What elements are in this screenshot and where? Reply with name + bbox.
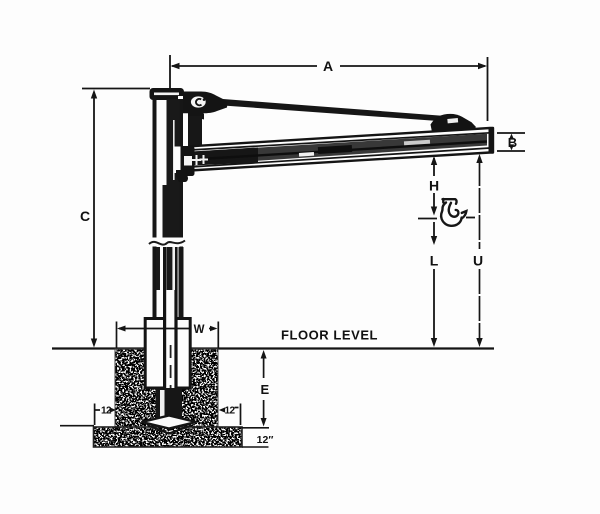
- svg-text:U: U: [473, 253, 483, 269]
- svg-text:FLOOR LEVEL: FLOOR LEVEL: [281, 328, 378, 343]
- svg-text:W: W: [194, 324, 205, 336]
- svg-text:12″: 12″: [257, 434, 274, 446]
- svg-text:L: L: [430, 253, 439, 269]
- svg-text:12: 12: [224, 406, 235, 417]
- svg-text:B: B: [508, 135, 517, 150]
- svg-text:A: A: [323, 58, 333, 74]
- svg-text:E: E: [260, 382, 269, 397]
- svg-text:H: H: [429, 178, 439, 194]
- svg-text:12: 12: [101, 406, 112, 417]
- svg-text:C: C: [80, 208, 90, 224]
